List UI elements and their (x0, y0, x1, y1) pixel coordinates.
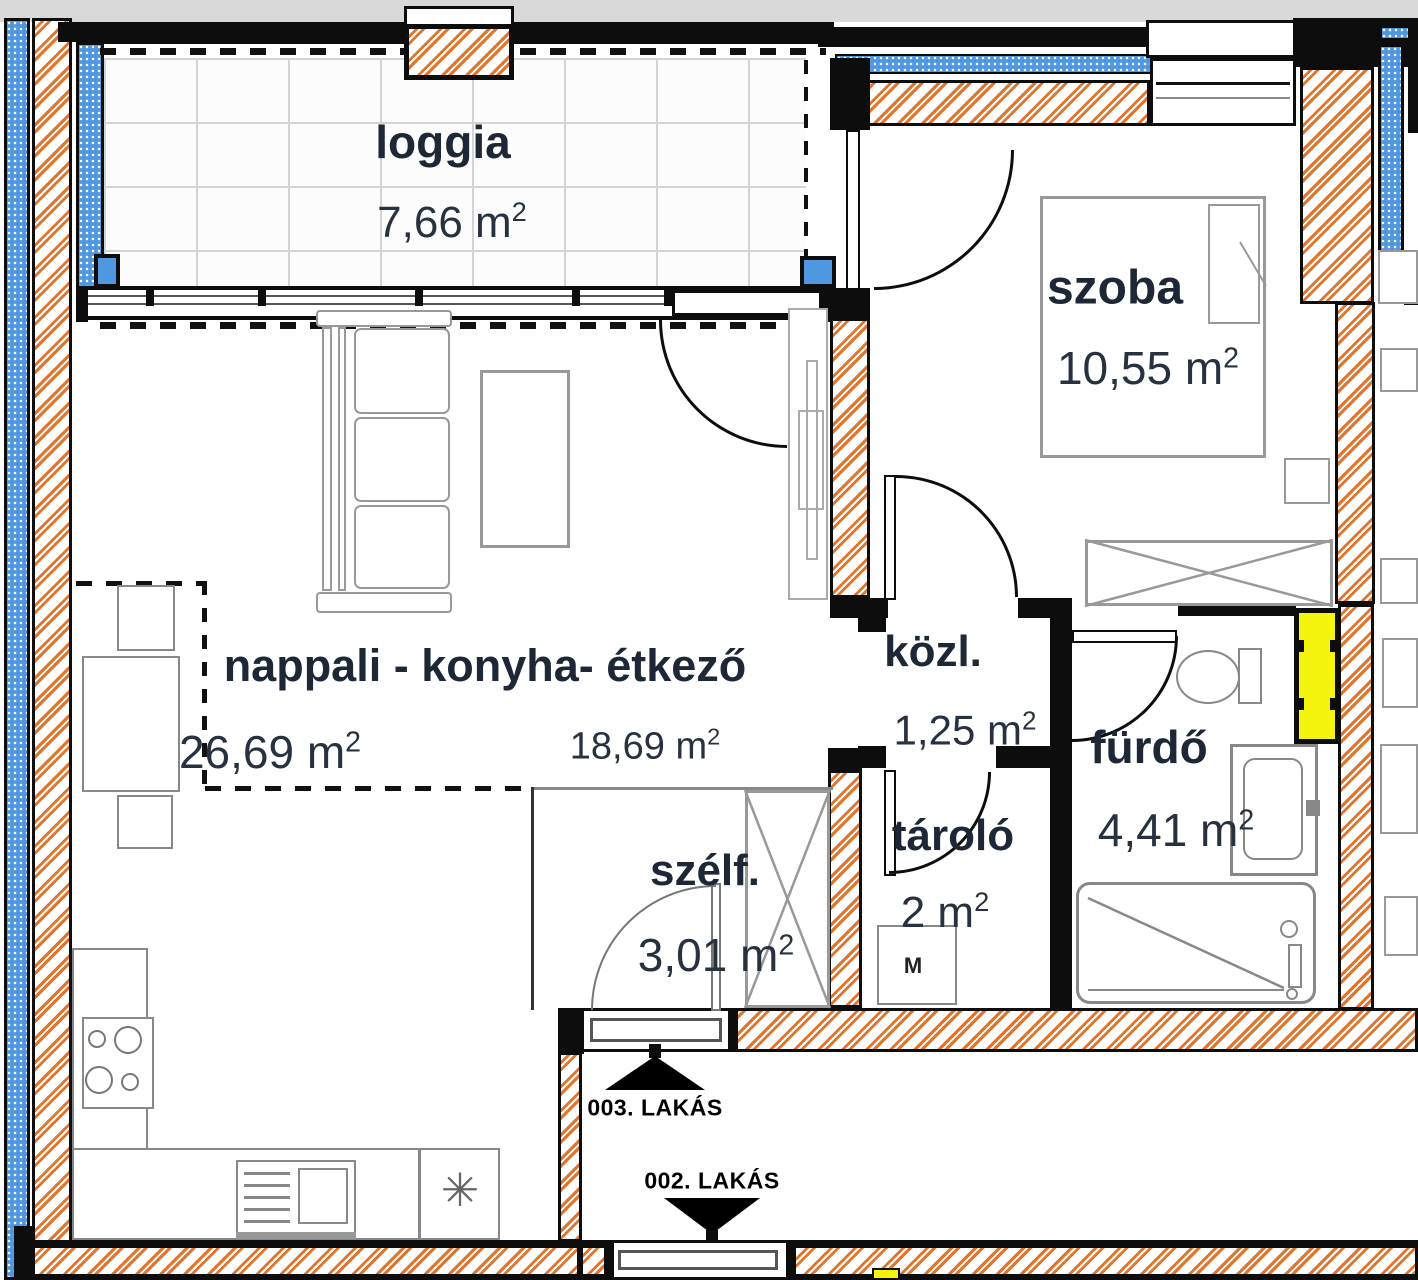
szoba-door-leaf[interactable] (846, 130, 860, 294)
tarolo-area-sup: 2 (974, 886, 989, 917)
tarolo-area: 2 m2 (901, 886, 990, 938)
glazing-post (572, 290, 580, 306)
szoba-wall-mid-block (830, 288, 870, 318)
bathtub-faucet (1280, 920, 1298, 938)
apt003-label: 003. LAKÁS (587, 1095, 722, 1122)
szoba-area-sup: 2 (1223, 343, 1239, 375)
neighbor-furniture (1380, 744, 1418, 834)
loggia-label: loggia (375, 115, 510, 169)
glazing-post (146, 290, 154, 306)
glazing-post (415, 290, 423, 306)
kitchen-bottom-wall (32, 1240, 580, 1280)
szoba-kozl-door-leaf[interactable] (884, 475, 896, 600)
sofa-armrest-bottom (316, 592, 452, 613)
bottom-shaft-marker (872, 1268, 900, 1280)
neighbor-furniture (1380, 348, 1418, 392)
dishwasher-symbol-icon: ✳ (441, 1163, 480, 1217)
sofa-armrest-top (316, 310, 452, 327)
washbasin-faucet (1306, 800, 1320, 816)
apt002-label: 002. LAKÁS (644, 1168, 779, 1195)
bathtub-drain (1286, 988, 1298, 1000)
floor-plan: ✳ loggia 7,66 m2 szoba 10,55 m2 nappali … (0, 0, 1418, 1280)
kozl-label: közl. (884, 627, 982, 677)
glazing-end-cap (76, 286, 88, 322)
shaft-notch (1330, 698, 1340, 710)
nappali-szoba-wall (830, 318, 870, 598)
sofa-cushion (354, 417, 450, 502)
furdo-area-value: 4,41 m (1098, 804, 1239, 856)
szoba-area: 10,55 m2 (1057, 341, 1239, 395)
loggia-open-edge (804, 60, 808, 288)
entrance-door-sill (590, 1018, 722, 1042)
szelf-area-sup: 2 (778, 930, 794, 962)
sink-drainer-line (244, 1208, 290, 1211)
furdo-area-sup: 2 (1238, 805, 1254, 837)
szelf-left-boundary (531, 787, 534, 1010)
szelf-area-value: 3,01 m (638, 929, 779, 981)
szelf-area: 3,01 m2 (638, 928, 795, 982)
tv-panel (798, 410, 824, 510)
szelf-label: szélf. (650, 846, 760, 896)
tarolo-label: tároló (892, 811, 1014, 861)
szelf-tarolo-wall (828, 770, 862, 1008)
entrance-jamb-right (728, 1008, 738, 1052)
szoba-window-glass-line (1156, 82, 1290, 85)
corridor-left-wall (558, 1052, 582, 1242)
sofa-backrest-line (338, 327, 346, 591)
furdo-area: 4,41 m2 (1098, 803, 1255, 857)
kozl-area: 1,25 m2 (894, 706, 1037, 755)
neighbor-furniture (1378, 250, 1418, 304)
apt002-door[interactable] (618, 1250, 778, 1270)
nappali-area-part-sup: 2 (707, 724, 720, 750)
entrance-jamb-left (558, 1008, 584, 1054)
nappali-area-part-value: 18,69 m (570, 725, 707, 767)
apt002-arrow-stem (706, 1230, 718, 1242)
loggia-area-sup: 2 (512, 196, 527, 227)
stove-burner (121, 1073, 139, 1091)
shaft-notch (1294, 698, 1304, 710)
szoba-window-sill (1146, 20, 1296, 58)
right-wall-upper (1300, 67, 1374, 304)
right-wall-middle (1335, 302, 1375, 604)
szoba-top-wall (832, 80, 1150, 126)
nappali-area-total-sup: 2 (345, 727, 361, 759)
dining-chair (117, 585, 175, 651)
sofa-backrest (322, 327, 332, 591)
bottom-left-corner-block (14, 1226, 34, 1280)
bathtub (1076, 882, 1316, 1004)
kozl-area-value: 1,25 m (894, 707, 1022, 754)
toilet-bowl (1176, 650, 1240, 704)
sink-drainer-line (244, 1172, 290, 1175)
sink-front-bar (236, 1232, 356, 1239)
loggia-pillar (404, 24, 514, 80)
loggia-floor (104, 58, 806, 288)
szoba-window-glass-line2 (1156, 97, 1290, 99)
left-outer-wall (32, 18, 72, 1280)
neighbor-furniture (1382, 638, 1418, 708)
szoba-door-swing-arc (874, 150, 1014, 290)
kozl-entry-jamb-top (858, 612, 886, 632)
nappali-area-part: 18,69 m2 (570, 724, 720, 769)
glazing-right-post-insulated (800, 256, 836, 288)
stove-burner (88, 1030, 106, 1048)
szoba-wall-top-block (830, 58, 870, 130)
nappali-label: nappali - konyha- étkező (224, 640, 747, 692)
dining-chair (117, 795, 173, 849)
szoba-area-value: 10,55 m (1057, 342, 1223, 394)
loggia-area-value: 7,66 m (377, 198, 512, 247)
toilet-tank (1238, 648, 1262, 704)
nightstand (1284, 458, 1330, 504)
coffee-table (480, 370, 570, 548)
tarolo-area-value: 2 m (901, 888, 974, 937)
apt002-door-jamb (786, 1240, 796, 1280)
szoba-window (1150, 58, 1296, 126)
terrace-door-swing-arc (659, 320, 787, 448)
kozl-entry-jamb-bottom (858, 746, 886, 768)
kozl-furdo-wall (1050, 598, 1072, 1010)
counter-divider (418, 1148, 421, 1240)
outside-background (0, 0, 1418, 22)
glazing-left-post-insulated (94, 254, 120, 288)
left-insulation-strip (4, 18, 30, 1280)
sink-drainer-line (244, 1196, 290, 1199)
shaft-notch (1330, 640, 1340, 652)
right-edge-line (1408, 45, 1418, 133)
shaft-notch (1294, 640, 1304, 652)
neighbor-furniture (1384, 896, 1418, 956)
nappali-area-total: 26,69 m2 (179, 725, 361, 779)
kozl-area-sup: 2 (1022, 706, 1036, 736)
dining-zone-dash-bottom (205, 786, 533, 791)
glazing-post (258, 290, 266, 306)
right-wall-lower (1338, 604, 1374, 1010)
shower-column (1288, 944, 1302, 988)
furdo-label: fürdő (1090, 720, 1208, 774)
loggia-area: 7,66 m2 (377, 196, 527, 248)
neighbor-furniture (1380, 558, 1418, 604)
sink-drainer-line (244, 1220, 290, 1223)
stove-burner (85, 1066, 113, 1094)
sofa-cushion (354, 328, 450, 414)
szelf-wall-top-block (828, 748, 862, 770)
apt002-arrow-icon (664, 1198, 760, 1234)
stove-burner (114, 1026, 142, 1054)
washing-machine-label: M (904, 953, 922, 979)
sofa-cushion (354, 505, 450, 589)
szoba-wardrobe (1085, 540, 1333, 606)
loggia-left-insulation (76, 42, 104, 290)
apt002-door-jamb (604, 1240, 614, 1280)
corner-insulation-bit (1380, 26, 1410, 40)
szoba-kozl-door-swing-arc (896, 475, 1018, 597)
glazing-post (664, 290, 672, 306)
dining-table (82, 656, 180, 792)
apt003-arrow-icon (605, 1056, 705, 1090)
shaft-highlight (1294, 608, 1340, 744)
sink-basin (298, 1168, 348, 1224)
szoba-label: szoba (1047, 261, 1183, 316)
nappali-area-total-value: 26,69 m (179, 726, 345, 778)
sink-drainer-line (244, 1184, 290, 1187)
pillow (1208, 204, 1260, 324)
